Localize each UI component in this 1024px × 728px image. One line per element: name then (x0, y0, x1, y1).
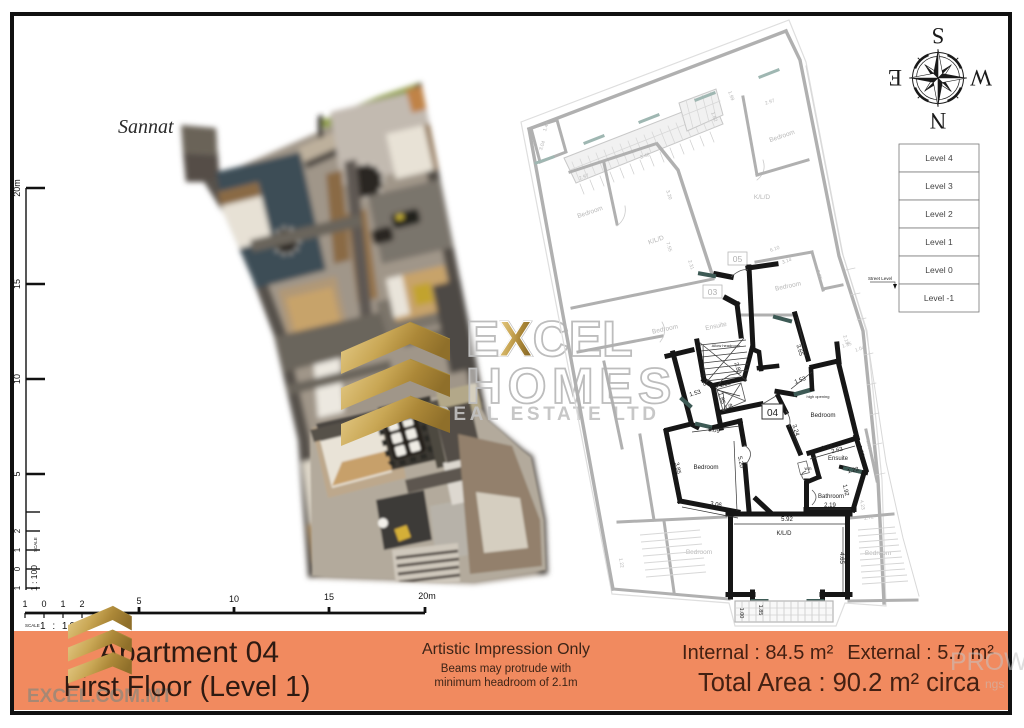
svg-text:E: E (888, 65, 902, 90)
svg-text:N: N (929, 108, 946, 133)
svg-text:1: 1 (60, 599, 65, 609)
svg-text:S: S (932, 23, 945, 48)
svg-text:SCALE: SCALE (25, 623, 40, 628)
svg-text:1.00: 1.00 (738, 608, 744, 619)
svg-text:Bathroom: Bathroom (818, 494, 844, 500)
svg-text:20m: 20m (12, 179, 22, 197)
svg-text:Level -1: Level -1 (924, 293, 955, 303)
svg-text:05: 05 (733, 254, 743, 264)
svg-text:1: 1 (22, 599, 27, 609)
svg-text:Sannat: Sannat (118, 116, 174, 138)
svg-text:First Floor (Level 1): First Floor (Level 1) (63, 671, 310, 703)
svg-text:ngs: ngs (985, 677, 1004, 691)
svg-text:SCALE: SCALE (33, 537, 38, 552)
svg-text:Beams may protrude with: Beams may protrude with (441, 663, 571, 675)
svg-text:W: W (970, 65, 992, 90)
svg-text:5: 5 (136, 596, 141, 606)
svg-text:Bedroom: Bedroom (693, 464, 718, 471)
svg-text:20m: 20m (418, 591, 436, 601)
svg-text:REAL ESTATE LTD: REAL ESTATE LTD (436, 404, 660, 425)
svg-text:5: 5 (12, 471, 22, 476)
svg-text:04: 04 (767, 408, 779, 419)
svg-text:0: 0 (41, 599, 46, 609)
svg-text:03: 03 (708, 287, 718, 297)
svg-text:K/L/D: K/L/D (754, 194, 771, 201)
svg-text:2: 2 (79, 599, 84, 609)
svg-text:1.85: 1.85 (757, 605, 763, 616)
svg-text:15: 15 (12, 279, 22, 289)
svg-text:2: 2 (13, 528, 22, 533)
svg-text:Total Area : 90.2 m² circa: Total Area : 90.2 m² circa (698, 669, 981, 697)
svg-text:15: 15 (324, 592, 334, 602)
svg-text:high opening: high opening (807, 394, 830, 399)
svg-text:10: 10 (12, 374, 22, 384)
svg-text:PROW: PROW (950, 648, 1024, 676)
svg-text:Level 4: Level 4 (925, 153, 953, 163)
svg-text:Artistic Impression Only: Artistic Impression Only (422, 641, 590, 658)
svg-text:Ensuite: Ensuite (828, 456, 849, 462)
svg-text:1: 1 (13, 547, 22, 552)
svg-text:minimum headroom of 2.1m: minimum headroom of 2.1m (434, 677, 577, 689)
svg-text:Street Level: Street Level (868, 276, 892, 281)
svg-text:1 : 100: 1 : 100 (29, 565, 39, 591)
svg-text:4.65: 4.65 (838, 552, 844, 564)
svg-text:10: 10 (229, 594, 239, 604)
svg-text:Level 1: Level 1 (925, 237, 953, 247)
svg-text:1: 1 (13, 585, 22, 590)
svg-text:Level 3: Level 3 (925, 181, 953, 191)
svg-text:2.19: 2.19 (824, 503, 836, 509)
svg-text:Level 0: Level 0 (925, 265, 953, 275)
svg-text:Level 2: Level 2 (925, 209, 953, 219)
svg-text:0: 0 (13, 566, 22, 571)
svg-text:Bedroom: Bedroom (810, 412, 835, 419)
svg-text:5.92: 5.92 (781, 517, 793, 523)
svg-text:Allow headroom: Allow headroom (712, 343, 741, 348)
svg-text:K/L/D: K/L/D (776, 531, 792, 537)
